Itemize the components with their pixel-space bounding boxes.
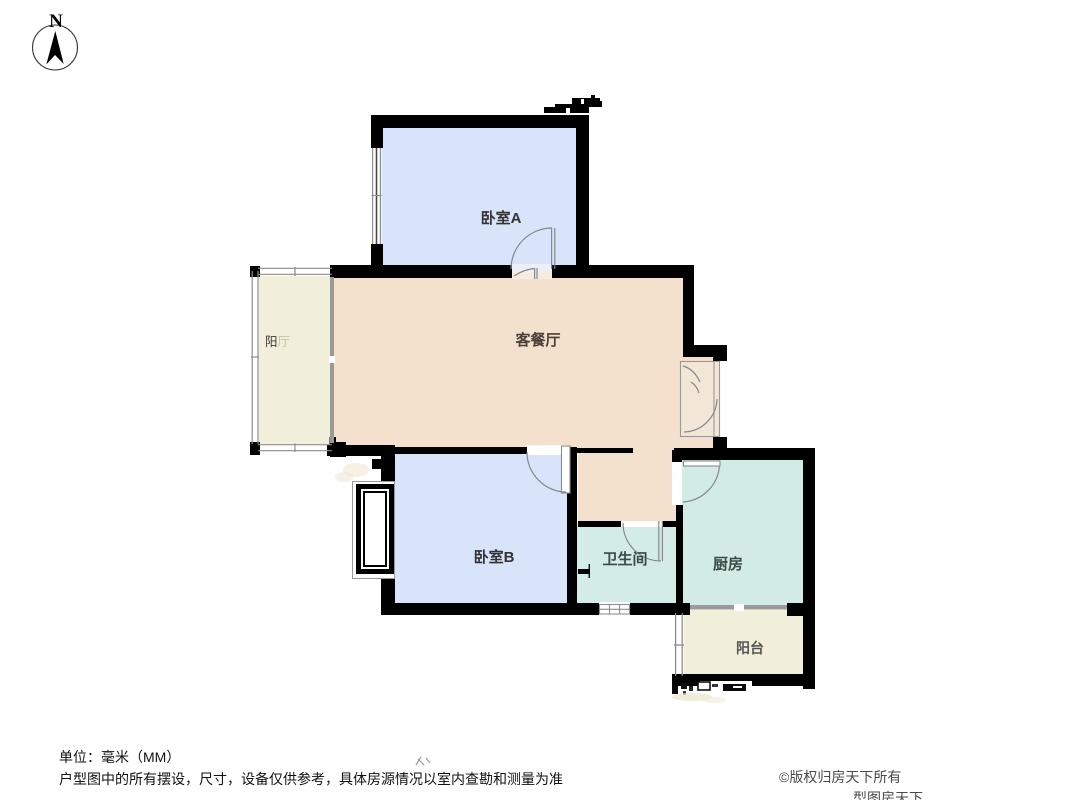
svg-text:卧室B: 卧室B [474,548,515,566]
svg-text:卧室A: 卧室A [481,209,522,227]
svg-text:户型图中的所有摆设，尺寸，设备仅供参考，具体房源情况以室内查: 户型图中的所有摆设，尺寸，设备仅供参考，具体房源情况以室内查勘和测量为准 [59,771,563,787]
svg-text:卫生间: 卫生间 [602,550,647,568]
svg-text:型图房天下: 型图房天下 [853,790,923,800]
svg-text:©版权归房天下所有: ©版权归房天下所有 [779,769,901,785]
svg-text:单位：毫米（MM）: 单位：毫米（MM） [59,749,180,765]
svg-text:阳厅: 阳厅 [265,335,290,349]
svg-text:厨房: 厨房 [713,555,743,573]
svg-text:客餐厅: 客餐厅 [514,331,560,349]
svg-text:阳台: 阳台 [736,640,764,656]
svg-text:N: N [49,11,63,32]
